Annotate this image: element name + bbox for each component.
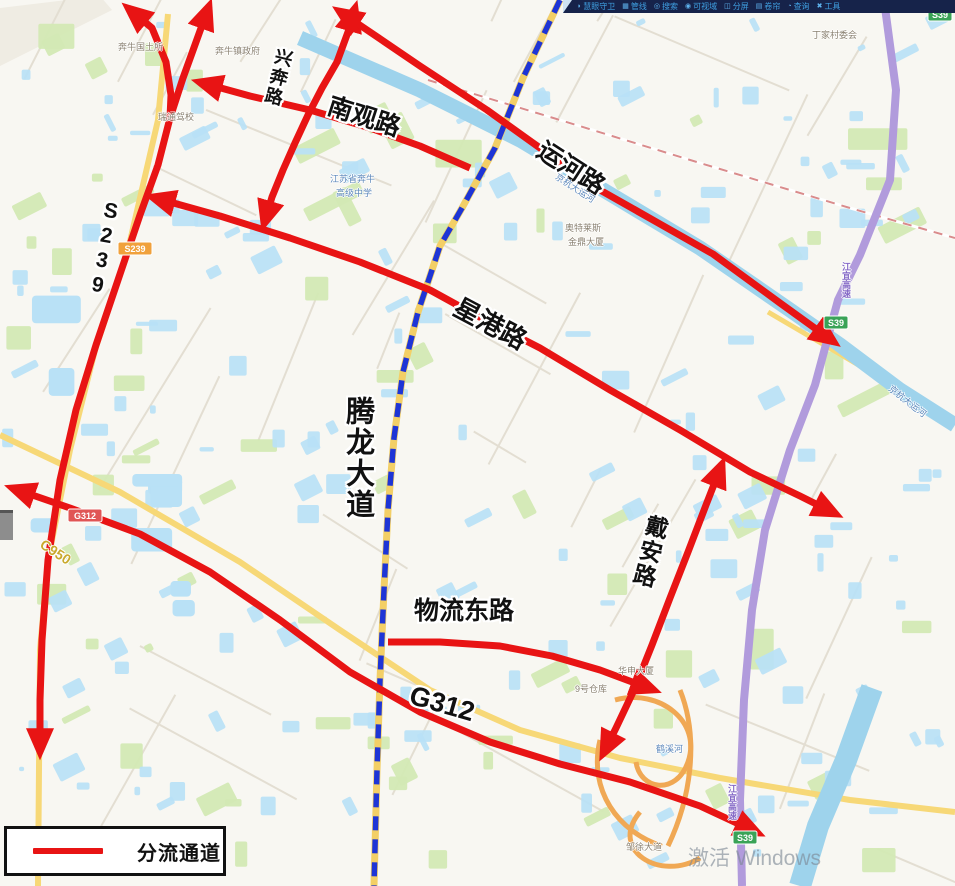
legend-line-swatch (33, 848, 103, 854)
toolbar-item-label: 管线 (631, 3, 647, 11)
legend-box: 分流通道 (4, 826, 226, 876)
toolbar-item-label: 慧眼守卫 (583, 3, 615, 11)
toolbar-item-卷帘[interactable]: ▤卷帘 (756, 3, 781, 11)
road-shield-S239: S239 (118, 242, 152, 255)
toolbar-item-查询[interactable]: ◔查询 (787, 3, 809, 11)
toolbar-icon-0: ◗ (577, 3, 581, 10)
toolbar-corner-icon (563, 0, 572, 13)
base-map[interactable]: S239G312S39S39S39 (0, 0, 955, 886)
toolbar-item-label: 查询 (794, 3, 810, 11)
toolbar-item-label: 卷帘 (764, 3, 780, 11)
toolbar-item-工具[interactable]: ✖工具 (817, 3, 841, 11)
toolbar-item-label: 可视域 (693, 3, 717, 11)
toolbar-icon-3: ◉ (685, 3, 691, 10)
side-chip (0, 510, 13, 540)
toolbar-icon-5: ▤ (756, 3, 763, 10)
toolbar-item-慧眼守卫[interactable]: ◗慧眼守卫 (577, 3, 615, 11)
toolbar-item-label: 搜索 (662, 3, 678, 11)
legend-label: 分流通道 (137, 837, 221, 866)
toolbar-icon-6: ◔ (787, 3, 791, 10)
toolbar-item-label: 工具 (824, 3, 840, 11)
toolbar-item-搜索[interactable]: ◎搜索 (654, 3, 678, 11)
road-shield-G312: G312 (68, 509, 102, 522)
toolbar-icon-7: ✖ (817, 3, 823, 10)
windows-activation-watermark: 激活 Windows (688, 842, 821, 872)
toolbar-icon-1: ▦ (622, 3, 629, 10)
road-shield-S39: S39 (824, 316, 848, 329)
toolbar-icon-2: ◎ (654, 3, 660, 10)
svg-text:S239: S239 (124, 244, 145, 254)
toolbar-item-分屏[interactable]: ◫分屏 (724, 3, 749, 11)
top-toolbar: ◗慧眼守卫▦管线◎搜索◉可视域◫分屏▤卷帘◔查询✖工具 (563, 0, 955, 13)
svg-text:S39: S39 (828, 318, 844, 328)
svg-text:G312: G312 (74, 511, 96, 521)
toolbar-icon-4: ◫ (724, 3, 731, 10)
map-application-window: { "toolbar": { "items": [ {"icon":"◗","l… (0, 0, 955, 886)
toolbar-item-管线[interactable]: ▦管线 (622, 3, 647, 11)
toolbar-item-可视域[interactable]: ◉可视域 (685, 3, 717, 11)
toolbar-item-label: 分屏 (733, 3, 749, 11)
